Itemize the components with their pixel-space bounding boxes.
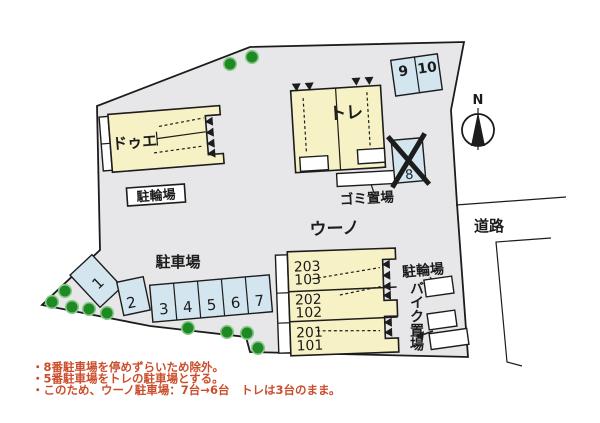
tree-icon [83, 303, 96, 316]
north-compass-icon: N [462, 93, 494, 150]
garbage-area-label: ゴミ置場 [340, 189, 395, 209]
uno-label: ウーノ [309, 218, 360, 240]
parking-space-7-label: 7 [254, 291, 265, 310]
parking-space-3-label: 3 [158, 300, 169, 319]
parking-lot-title: 駐車場 [155, 253, 200, 271]
parking-space-6-label: 6 [230, 293, 241, 312]
parking-space-9-10: 9 10 [391, 54, 443, 96]
road-edge-upper [456, 197, 566, 205]
road-label: 道路 [474, 217, 505, 235]
parking-space-4-label: 4 [182, 298, 193, 317]
parking-space-8-label: 8 [405, 168, 415, 184]
compass-n-label: N [473, 93, 484, 108]
tree-icon [224, 58, 237, 71]
site-plan-page: 道路 N ドゥエ [0, 0, 600, 423]
tree-icon [46, 296, 59, 309]
motorcycle-box-1 [427, 310, 457, 330]
tre-label: トレ [329, 102, 364, 124]
bicycle-parking-left: 駐輪場 [126, 184, 185, 206]
parking-space-10-label: 10 [416, 59, 438, 78]
parking-space-8-excluded: 8 [388, 133, 429, 187]
tree-icon [182, 322, 195, 335]
uno-unit-numbers: 203 103 202 102 201 101 [294, 259, 324, 355]
notes: ・8番駐車場を停めずらいため除外。 ・5番駐車場をトレの駐車場とする。 ・このた… [32, 360, 341, 397]
site-plan-svg: 道路 N ドゥエ [0, 0, 600, 423]
tree-icon [221, 326, 234, 339]
unit-102: 102 [295, 305, 322, 322]
road-edge-lower [496, 238, 551, 366]
unit-101: 101 [296, 338, 323, 355]
bicycle-parking-left-label: 駐輪場 [136, 187, 176, 206]
due-label: ドゥエ [112, 132, 158, 153]
building-due: ドゥエ [99, 106, 224, 173]
motorcycle-parking-label: バイク置場 [408, 281, 424, 352]
tree-icon [246, 51, 259, 64]
note-line-3: ・このため、ウーノ駐車場：7台→6台 トレは3台のまま。 [32, 383, 341, 397]
tree-icon [252, 342, 265, 355]
unit-103: 103 [294, 272, 321, 289]
tree-icon [101, 307, 114, 320]
building-tre: トレ [290, 76, 385, 172]
bicycle-rack-box [424, 276, 454, 297]
tree-icon [66, 301, 79, 314]
tree-icon [59, 285, 72, 298]
tree-icon [241, 327, 254, 340]
parking-space-5-label: 5 [206, 296, 217, 315]
